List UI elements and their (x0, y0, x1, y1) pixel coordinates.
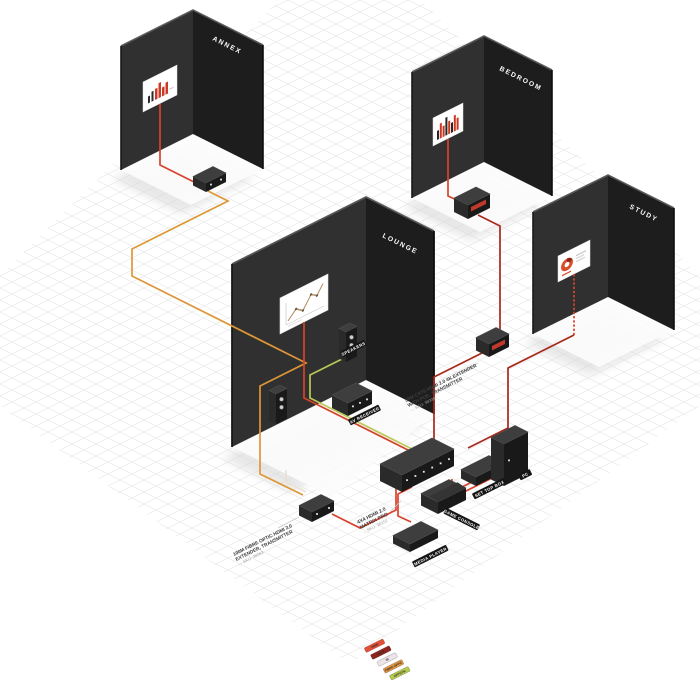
diagram-canvas: ANNEX BEDROOM (0, 0, 700, 700)
av-system-diagram: ANNEX BEDROOM (0, 0, 700, 700)
device-speaker-left (269, 385, 287, 424)
cable-legend: HDMICAT6IRFIBRE OPTICOPTICAL (364, 639, 410, 681)
lounge-right-wall (366, 197, 434, 414)
